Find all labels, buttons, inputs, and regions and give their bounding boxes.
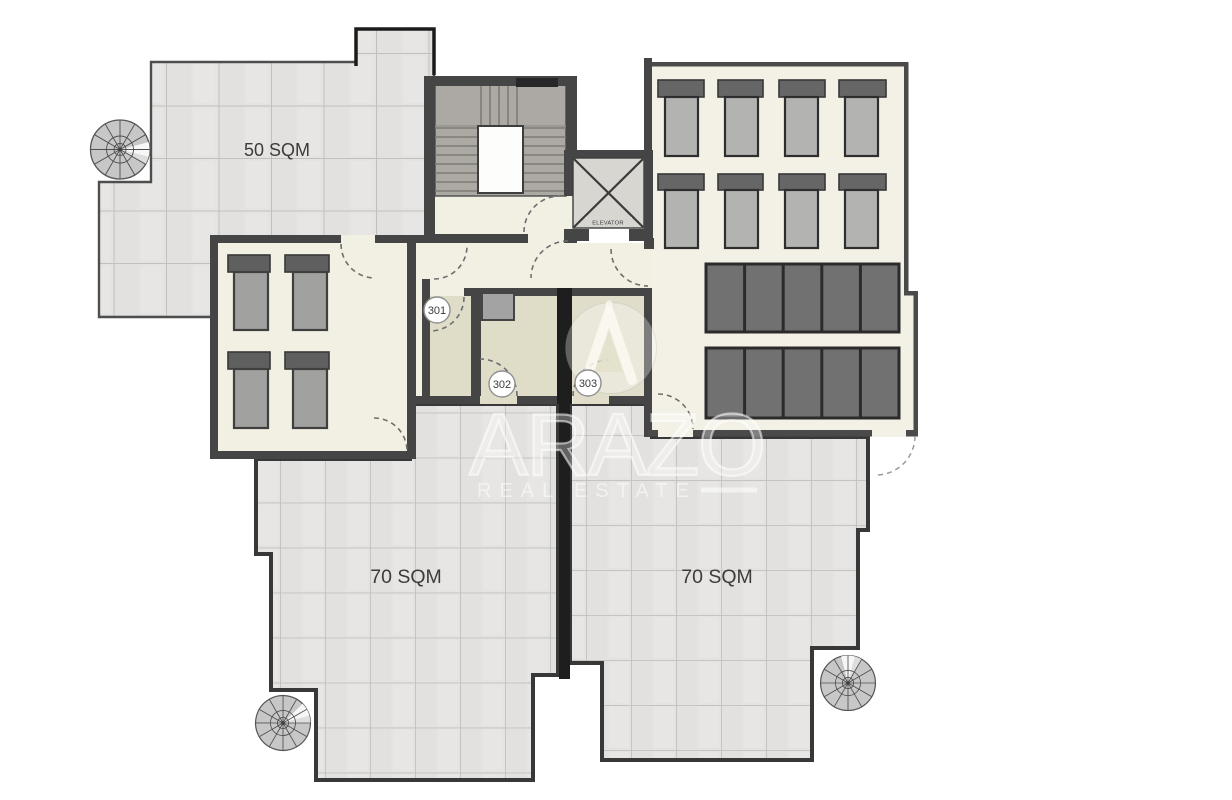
svg-text:70 SQM: 70 SQM [370,566,442,588]
svg-text:303: 303 [579,378,597,390]
svg-text:50 SQM: 50 SQM [244,140,310,160]
svg-text:ELEVATOR: ELEVATOR [592,221,624,227]
svg-text:302: 302 [493,379,511,391]
svg-text:70 SQM: 70 SQM [681,566,753,588]
svg-text:REAL ESTATE: REAL ESTATE [477,480,697,502]
svg-text:301: 301 [428,305,446,317]
